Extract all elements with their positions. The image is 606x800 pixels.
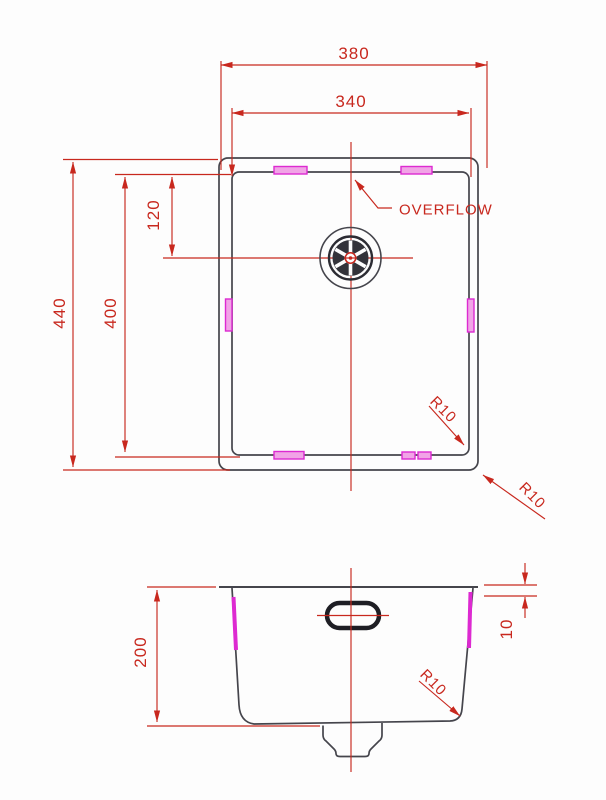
clip-mark-bottom-left <box>274 452 304 460</box>
dim-outer-width-value: 380 <box>338 44 369 63</box>
dim-rim-step-value: 10 <box>497 619 516 640</box>
radius-section-label: R10 <box>416 666 450 700</box>
plan-view: 380 340 440 400 120 <box>50 44 549 519</box>
dim-inner-width-value: 340 <box>335 92 366 111</box>
overflow-leader <box>355 180 392 208</box>
drawing-canvas: 380 340 440 400 120 <box>0 0 606 800</box>
section-view: 200 10 R10 <box>131 563 537 772</box>
section-bowl-profile <box>232 588 473 724</box>
drain-flange-profile <box>323 723 382 757</box>
clip-mark-top-left <box>274 167 307 175</box>
dim-rim-step: 10 <box>484 563 537 639</box>
clip-mark-bottom-right-2 <box>418 452 431 459</box>
radius-callout-section: R10 <box>416 666 460 716</box>
overflow-callout: OVERFLOW <box>355 180 493 219</box>
radius-inner-label: R10 <box>426 393 460 427</box>
clip-mark-right <box>468 299 475 332</box>
overflow-label: OVERFLOW <box>399 202 493 219</box>
clip-mark-top-right <box>401 167 432 175</box>
dim-outer-length: 440 <box>50 160 230 471</box>
dim-drain-offset-value: 120 <box>144 199 163 230</box>
wall-mark-left <box>234 597 237 650</box>
drain-strainer-icon <box>320 228 381 289</box>
dim-depth: 200 <box>131 587 320 726</box>
dim-inner-length-value: 400 <box>101 297 120 328</box>
clip-mark-bottom-right-1 <box>402 452 415 459</box>
dim-outer-length-value: 440 <box>50 297 69 328</box>
radius-outer-label: R10 <box>515 479 549 513</box>
dim-drain-offset: 120 <box>144 177 172 256</box>
wall-mark-right <box>469 592 471 648</box>
dim-depth-value: 200 <box>131 636 150 667</box>
radius-callout-inner: R10 <box>426 393 464 445</box>
clip-mark-left <box>226 299 233 331</box>
radius-callout-outer: R10 <box>483 475 549 519</box>
sink-drawing: 380 340 440 400 120 <box>0 0 606 800</box>
